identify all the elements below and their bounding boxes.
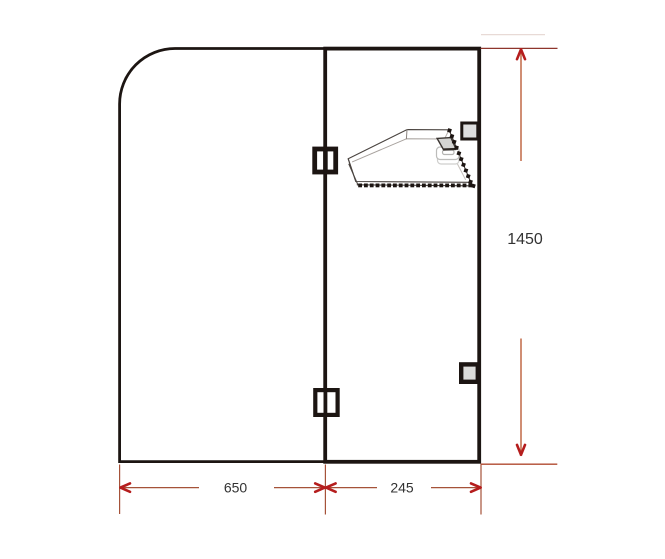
svg-text:650: 650 bbox=[224, 480, 248, 496]
svg-text:245: 245 bbox=[390, 480, 414, 496]
svg-text:1450: 1450 bbox=[507, 231, 543, 248]
